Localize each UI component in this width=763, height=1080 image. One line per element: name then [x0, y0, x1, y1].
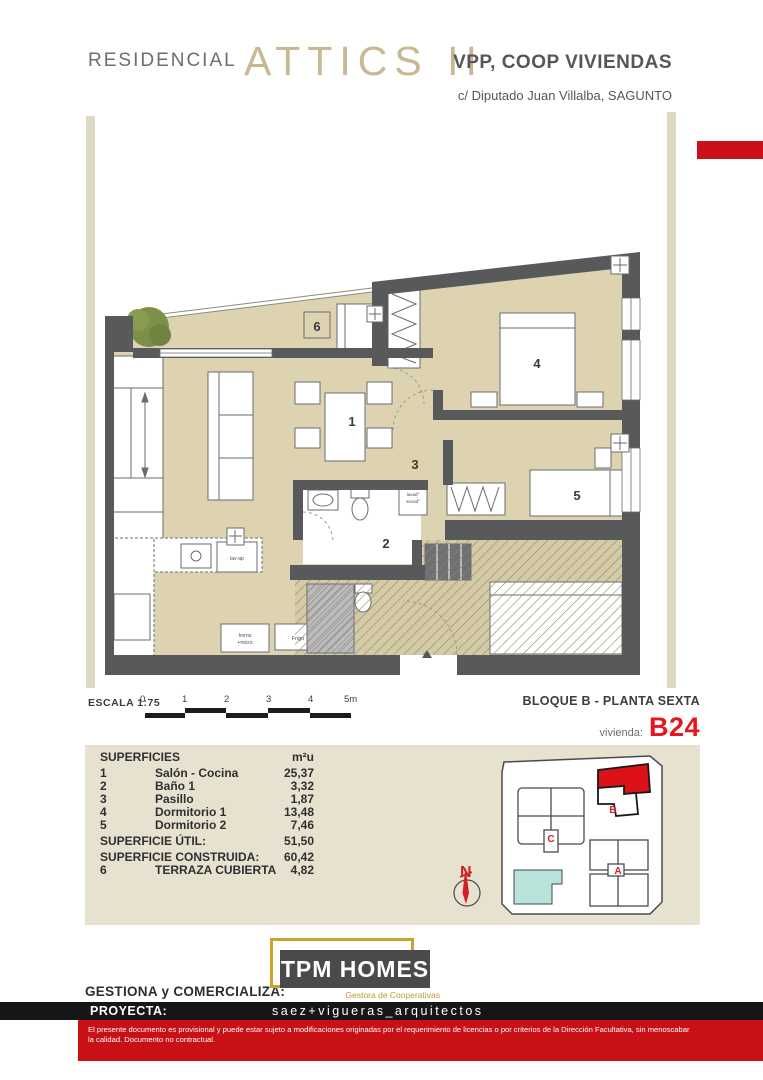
left-accent-bar [86, 116, 95, 688]
row-name: Dormitorio 2 [155, 819, 226, 832]
surfaces-unit-header: m²u [230, 751, 314, 764]
right-accent-bar [667, 112, 676, 688]
unit-label: vivienda: [600, 727, 643, 739]
room-label-2: 2 [382, 536, 389, 551]
room-label-4: 4 [533, 356, 541, 371]
disclaimer-line-1: El presente documento es provisional y p… [88, 1025, 755, 1035]
table-row: 5 Dormitorio 2 7,46 [100, 819, 315, 832]
surfaces-panel: SUPERFICIES m²u 1 Salón - Cocina 25,37 2… [85, 745, 700, 925]
architect-label: PROYECTA: [90, 1002, 167, 1020]
sofa [208, 372, 253, 500]
block-a-label: A [614, 866, 621, 877]
scale-tick-2: 2 [224, 694, 229, 705]
fridge-label: Frigo [292, 636, 305, 642]
table-row: 2 Baño 1 3,32 [100, 780, 315, 793]
disclaimer-band: El presente documento es provisional y p… [78, 1020, 763, 1061]
brand-text: RESIDENCIAL [88, 50, 237, 72]
scale-tick-5: 5m [344, 694, 357, 705]
dishwasher-label: lav-ap [230, 556, 244, 562]
address: c/ Diputado Juan Villalba, SAGUNTO [458, 88, 672, 103]
scale-tick-4: 4 [308, 694, 313, 705]
terrace-row: 6 TERRAZA CUBIERTA 4,82 [100, 864, 315, 877]
oven-label-2: +micro [237, 640, 252, 646]
key-plan: C B A N [440, 752, 705, 920]
dryer-label: secad° [406, 499, 420, 504]
total-util-row: SUPERFICIE ÚTIL: 51,50 [100, 835, 315, 848]
disclaimer-line-2: la calidad. Documento no contractual. [88, 1035, 755, 1045]
logo-title: TPM HOMES [281, 956, 429, 983]
unit-id: vivienda: B24 [600, 712, 700, 743]
architect-name: saez+vigueras_arquitectos [272, 1002, 484, 1020]
floor-plan: 1 2 3 4 5 6 lavad° secad° lav-ap horno +… [105, 250, 665, 685]
row-num: 6 [100, 864, 107, 877]
unit-code: B24 [649, 712, 700, 743]
scale-tick-3: 3 [266, 694, 271, 705]
room-label-6: 6 [313, 319, 320, 334]
tpm-homes-logo: TPM HOMES Gestora de Cooperativas [270, 936, 442, 1000]
room-label-3: 3 [411, 457, 418, 472]
scale-tick-0: 0 [140, 694, 145, 705]
block-b-label: B [609, 805, 616, 816]
block-c-label: C [547, 834, 554, 845]
logo-box: TPM HOMES [280, 950, 430, 988]
room-label-5: 5 [573, 488, 580, 503]
flyer-page: RESIDENCIAL ATTICS II VPP, COOP VIVIENDA… [0, 0, 763, 1080]
block-floor-label: BLOQUE B - PLANTA SEXTA [523, 694, 701, 708]
table-row: 1 Salón - Cocina 25,37 [100, 767, 315, 780]
logo-subtitle: Gestora de Cooperativas [346, 990, 441, 1000]
oven-label-1: horno [239, 633, 252, 639]
scale-label: ESCALA 1:75 [88, 697, 160, 709]
architect-bar: PROYECTA: saez+vigueras_arquitectos [0, 1002, 763, 1020]
surfaces-table: SUPERFICIES m²u 1 Salón - Cocina 25,37 2… [100, 751, 315, 877]
total-name: SUPERFICIE ÚTIL: [100, 835, 206, 848]
washer-label: lavad° [407, 492, 420, 497]
corridor-wardrobe [447, 483, 505, 515]
surfaces-header: SUPERFICIES m²u [100, 751, 315, 764]
shower-hatch [307, 584, 354, 653]
row-value: 4,82 [230, 864, 314, 877]
top-right-red-bar [697, 141, 763, 159]
project-title: ATTICS II [244, 38, 484, 85]
room-label-1: 1 [348, 414, 355, 429]
north-compass-icon: N [454, 864, 480, 906]
row-value: 7,46 [230, 819, 314, 832]
scale-tick-1: 1 [182, 694, 187, 705]
surfaces-title: SUPERFICIES [100, 751, 180, 764]
building-core [113, 356, 163, 548]
housing-type: VPP, COOP VIVIENDAS [453, 52, 672, 74]
total-value: 51,50 [230, 835, 314, 848]
manager-label: GESTIONA y COMERCIALIZA: [85, 984, 285, 999]
row-num: 5 [100, 819, 107, 832]
